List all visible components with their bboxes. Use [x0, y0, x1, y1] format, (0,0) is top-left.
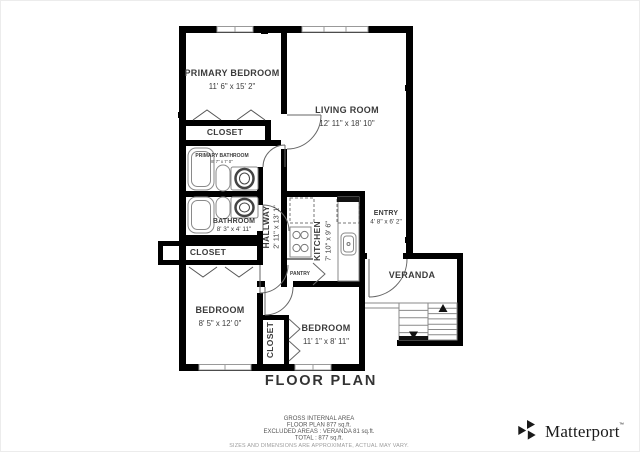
room-dims-primary-bathroom: 8' 7" x 7' 0"	[211, 159, 233, 164]
bifold-door	[289, 341, 300, 361]
matterport-wordmark: Matterport	[545, 422, 620, 441]
sink-vanity-icon	[216, 165, 230, 191]
fridge-icon	[290, 198, 314, 223]
toilet-icon	[231, 197, 258, 218]
footer-disclaimer: SIZES AND DIMENSIONS ARE APPROXIMATE, AC…	[229, 443, 409, 449]
room-dims-entry: 4' 8" x 6' 2"	[370, 219, 402, 226]
room-label-primary-bedroom: PRIMARY BEDROOM	[184, 68, 279, 78]
matterport-pinwheel-icon	[514, 420, 535, 442]
closet-rail	[193, 110, 265, 120]
room-label-bedroom-right: BEDROOM	[301, 323, 350, 333]
bifold-door	[289, 319, 300, 339]
footer-total-area: TOTAL : 877 sq.ft.	[295, 436, 344, 442]
window	[302, 27, 368, 33]
room-dims-living-room: 12' 11" x 18' 10"	[319, 119, 374, 128]
floor-plan-page: PRIMARY BEDROOM 11' 6" x 15' 2" LIVING R…	[0, 0, 640, 452]
toilet-icon	[231, 167, 258, 190]
door-arc	[287, 115, 321, 149]
window	[199, 365, 251, 371]
room-label-entry: ENTRY	[374, 210, 399, 217]
kitchen-sink-icon	[341, 233, 356, 255]
room-dims-hallway: 2' 11" x 13' 1"	[272, 205, 281, 249]
room-label-hallway: HALLWAY	[261, 206, 271, 249]
stove-icon	[290, 227, 311, 257]
room-dims-bedroom-right: 11' 1" x 8' 11"	[303, 337, 349, 346]
sink-vanity-icon	[216, 197, 230, 219]
room-label-veranda: VERANDA	[389, 270, 436, 280]
room-label-closet-bedroom: CLOSET	[265, 321, 275, 358]
room-label-closet-primary: CLOSET	[207, 127, 244, 137]
window	[295, 365, 331, 371]
room-label-bedroom-left: BEDROOM	[195, 305, 244, 315]
room-label-living-room: LIVING ROOM	[315, 105, 379, 115]
floor-plan-svg: PRIMARY BEDROOM 11' 6" x 15' 2" LIVING R…	[1, 1, 640, 452]
room-label-pantry: PANTRY	[290, 271, 311, 277]
room-label-bathroom: BATHROOM	[213, 218, 255, 225]
bathtub-icon	[188, 197, 214, 233]
room-dims-kitchen: 7' 10" x 9' 6"	[324, 221, 333, 261]
stairs-icon	[365, 303, 457, 340]
floor-plan-title: FLOOR PLAN	[265, 373, 377, 389]
footer-floor-plan-area: FLOOR PLAN 877 sq.ft.	[287, 423, 352, 429]
room-dims-bathroom: 8' 3" x 4' 11"	[217, 226, 252, 233]
matterport-logo: Matterport ™	[514, 420, 624, 442]
room-label-kitchen: KITCHEN	[312, 221, 322, 261]
footer-area: GROSS INTERNAL AREA FLOOR PLAN 877 sq.ft…	[229, 416, 409, 449]
room-dims-bedroom-left: 8' 5" x 12' 0"	[199, 319, 242, 328]
footer-excluded-areas: EXCLUDED AREAS : VERANDA 81 sq.ft.	[263, 429, 374, 435]
closet-rail	[189, 267, 253, 277]
room-dims-primary-bedroom: 11' 6" x 15' 2"	[209, 82, 256, 91]
footer-gross-internal-area: GROSS INTERNAL AREA	[284, 416, 354, 422]
trademark-symbol: ™	[619, 422, 624, 428]
window	[217, 27, 253, 33]
room-label-closet-hall: CLOSET	[190, 247, 227, 257]
